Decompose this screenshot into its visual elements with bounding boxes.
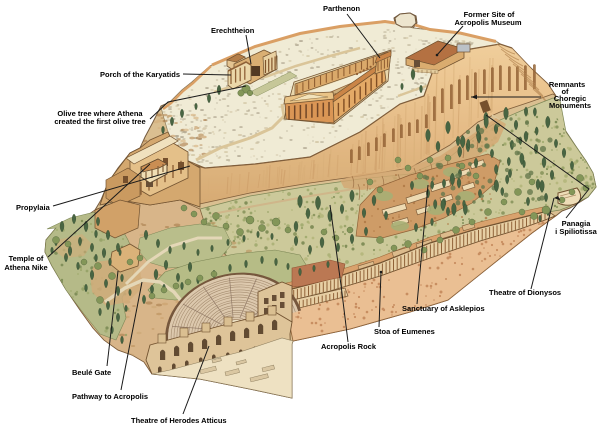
svg-text:Temple of: Temple of [9, 254, 44, 263]
svg-text:Sanctuary of Asklepios: Sanctuary of Asklepios [402, 304, 485, 313]
svg-text:Beulé Gate: Beulé Gate [72, 368, 111, 377]
svg-text:Monuments: Monuments [549, 101, 591, 110]
svg-text:Parthenon: Parthenon [323, 4, 361, 13]
svg-text:Stoa of Eumenes: Stoa of Eumenes [374, 327, 435, 336]
svg-text:Theatre of Dionysos: Theatre of Dionysos [489, 288, 561, 297]
svg-text:Propylaia: Propylaia [16, 203, 51, 212]
svg-text:Acropolis Museum: Acropolis Museum [454, 18, 521, 27]
svg-text:i Spiliotissa: i Spiliotissa [555, 227, 598, 236]
svg-text:Athena Nike: Athena Nike [4, 263, 47, 272]
svg-text:Theatre of Herodes Atticus: Theatre of Herodes Atticus [131, 416, 227, 425]
svg-text:Erechtheion: Erechtheion [211, 26, 255, 35]
svg-text:Pathway to Acropolis: Pathway to Acropolis [72, 392, 148, 401]
svg-text:Porch of the Karyatids: Porch of the Karyatids [100, 70, 180, 79]
svg-text:created the first olive tree: created the first olive tree [54, 117, 145, 126]
svg-text:Acropolis Rock: Acropolis Rock [321, 342, 377, 351]
